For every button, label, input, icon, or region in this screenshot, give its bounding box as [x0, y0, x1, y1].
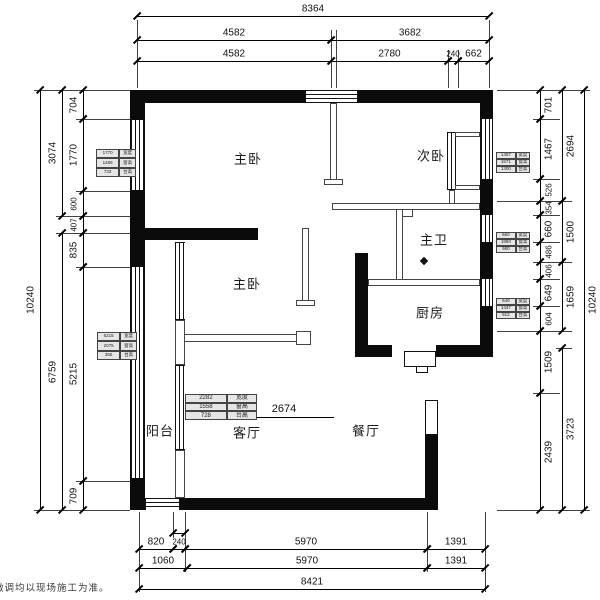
window-tag-cell: 1770 — [96, 149, 119, 158]
wall-exterior-left-1 — [130, 90, 145, 120]
dimension-value: 2780 — [378, 49, 400, 60]
extension-line — [34, 510, 130, 511]
window-tag-right-mid: 660宽度1850窗高980台高 — [496, 232, 530, 253]
dimension-value: 4582 — [223, 49, 245, 60]
dimension-line — [427, 549, 485, 550]
dimension-value: 600 — [70, 197, 79, 210]
dimension-line — [540, 90, 541, 119]
window-tag-cell: 733 — [96, 168, 119, 177]
dimension-value: 649 — [544, 284, 555, 301]
dimension-value: 1467 — [544, 138, 555, 160]
dimension-line — [540, 393, 541, 510]
window-tag-cell: 1850 — [496, 239, 516, 246]
window-tag-cell: 台高 — [227, 411, 257, 420]
dimension-line — [562, 348, 563, 510]
extension-line — [173, 512, 174, 538]
extension-line — [336, 30, 337, 88]
wall-kitchen-top — [368, 279, 480, 286]
extension-line — [331, 30, 332, 88]
window-tag-cell: 宽度 — [120, 332, 137, 341]
balcony-pier-2 — [175, 450, 185, 498]
extension-line — [56, 216, 130, 217]
dimension-value: 5215 — [69, 363, 80, 385]
dimension-value: 3682 — [399, 28, 421, 39]
room-label-second-bedroom: 次卧 — [417, 146, 445, 165]
dimension-line — [137, 16, 489, 17]
extension-line — [533, 393, 560, 394]
window-tag-cell: 912 — [496, 312, 516, 319]
extension-line — [56, 233, 130, 234]
extension-line — [533, 242, 560, 243]
dimension-value: 8421 — [301, 577, 323, 588]
dimension-line — [62, 90, 63, 216]
dimension-value: 526 — [545, 183, 554, 196]
window-tag-cell: 台高 — [516, 312, 530, 319]
extension-line — [497, 90, 590, 91]
extension-line — [533, 262, 572, 263]
window-tag-cell: 台高 — [119, 168, 136, 177]
window-tag-cell: 窗高 — [516, 239, 530, 246]
extension-line — [533, 279, 560, 280]
window-tag-row: 1571窗高 — [496, 159, 530, 166]
dimension-line — [139, 568, 187, 569]
window-tag-cell: 980 — [496, 246, 516, 253]
window-tag-cell: 1558 — [185, 403, 227, 412]
dimension-line — [139, 549, 173, 550]
extension-line — [485, 512, 486, 592]
balcony-glass-2 — [175, 365, 185, 450]
dimension-tick — [485, 12, 493, 20]
window-tag-cell: 365 — [97, 351, 120, 360]
extension-line — [489, 20, 490, 88]
window-tag-cell: 台高 — [120, 351, 137, 360]
window-tag-row: 733台高 — [96, 168, 136, 177]
dimension-value: 662 — [465, 49, 482, 60]
window-tag-cell: 宽度 — [119, 149, 136, 158]
dimension-line — [83, 119, 84, 191]
window-tag-row: 1447窗高 — [496, 305, 530, 312]
dimension-line — [83, 90, 84, 119]
extension-line — [533, 119, 560, 120]
dimension-line — [137, 61, 331, 62]
window-tag-cell: 1467 — [496, 152, 516, 159]
dimension-value: 835 — [69, 242, 80, 259]
dimension-value: 10240 — [588, 286, 599, 314]
door-jamb-bedroom-top — [324, 179, 343, 185]
dimension-line — [83, 481, 84, 510]
window-tag-left-top: 1770宽度1456窗高733台高 — [96, 149, 136, 177]
window-right-kitchen — [480, 279, 493, 306]
dimension-value: 5970 — [295, 537, 317, 548]
dimension-value: 604 — [545, 312, 554, 325]
window-tag-cell: 1456 — [96, 158, 119, 167]
window-tag-cell: 2075 — [97, 341, 120, 350]
window-tag-cell: 宽度 — [516, 152, 530, 159]
dimension-value: 1770 — [69, 144, 80, 166]
wall-bedroom-divider — [330, 103, 337, 181]
window-tag-row: 660宽度 — [496, 232, 530, 239]
dimension-value: 10240 — [26, 286, 37, 314]
extension-line — [137, 20, 138, 88]
extension-line — [497, 201, 572, 202]
room-label-master-bath: 主卫 — [420, 230, 448, 249]
window-tag-cell: 1447 — [496, 305, 516, 312]
dimension-value: 820 — [148, 537, 165, 548]
window-tag-cell: 窗高 — [119, 158, 136, 167]
bay-window-stub — [449, 190, 455, 204]
floor-plan-canvas: 主卧 次卧 主卫 主卧 厨房 阳台 客厅 餐厅 ▽ 2674 836445823… — [0, 0, 600, 600]
wall-exterior-bottom — [180, 498, 438, 510]
window-tag-cell: 660 — [496, 232, 516, 239]
dimension-value: 486 — [545, 245, 554, 258]
extension-line — [76, 119, 130, 120]
window-tag-cell: 1571 — [496, 159, 516, 166]
window-tag-row: 5215宽度 — [97, 332, 137, 341]
dimension-value: 1509 — [544, 351, 555, 373]
wall-kitchen-bottom-right — [436, 345, 493, 357]
dimension-value: 240 — [172, 538, 185, 547]
window-tag-cell: 5215 — [97, 332, 120, 341]
kitchen-door-threshold — [404, 351, 436, 367]
window-tag-cell: 台高 — [516, 246, 530, 253]
window-top — [305, 90, 358, 103]
dimension-value: 2439 — [544, 440, 555, 462]
dimension-line — [83, 267, 84, 481]
dimension-value: 1391 — [445, 556, 467, 567]
extension-line — [76, 481, 130, 482]
floor-drain-icon — [420, 257, 428, 265]
window-tag-row: 2282宽度 — [185, 394, 257, 403]
kitchen-door-threshold-notch — [416, 366, 428, 373]
window-left-balcony — [130, 267, 145, 478]
window-tag-row: 1770宽度 — [96, 149, 136, 158]
window-tag-left-balcony: 5215宽度2075窗高365台高 — [97, 332, 137, 360]
window-tag-cell: 2282 — [185, 394, 227, 403]
dimension-line — [540, 331, 541, 393]
bay-window-inner — [447, 132, 457, 190]
dimension-value: 1391 — [445, 537, 467, 548]
window-tag-cell: 窗高 — [227, 403, 257, 412]
dimension-value: 709 — [69, 487, 80, 504]
extension-line — [497, 510, 590, 511]
wall-bedroom2-bottom — [183, 334, 304, 342]
dimension-value: 2694 — [566, 134, 577, 156]
window-tag-cell: 窗高 — [120, 341, 137, 350]
window-tag-row: 649宽度 — [496, 298, 530, 305]
dimension-line — [540, 119, 541, 179]
window-tag-right-kitchen: 649宽度1447窗高912台高 — [496, 298, 530, 319]
dimension-value: 407 — [70, 218, 79, 231]
wall-kitchen-bottom-left — [355, 345, 392, 357]
window-tag-row: 1850窗高 — [496, 239, 530, 246]
room-label-kitchen: 厨房 — [416, 303, 444, 322]
dimension-line — [40, 90, 41, 510]
window-tag-row: 1467宽度 — [496, 152, 530, 159]
room-label-master-bedroom-mid: 主卧 — [233, 274, 261, 293]
dimension-line — [331, 40, 489, 41]
room-label-balcony: 阳台 — [146, 421, 174, 440]
extension-line — [139, 512, 140, 592]
window-tag-cell: 1300 — [496, 166, 516, 173]
dimension-value: 660 — [544, 220, 555, 237]
balcony-glass-1 — [175, 242, 185, 320]
window-tag-cell: 台高 — [516, 166, 530, 173]
dimension-line — [83, 233, 84, 267]
dimension-line — [584, 90, 585, 510]
bay-window-top — [455, 132, 480, 137]
extension-line — [497, 331, 572, 332]
wall-kitchen-left-column — [355, 253, 368, 345]
dimension-value: 5970 — [296, 556, 318, 567]
extension-line — [448, 50, 449, 88]
extension-line — [556, 348, 572, 349]
extension-line — [533, 306, 560, 307]
window-bottom-balcony — [145, 498, 180, 510]
dimension-value: 406 — [545, 264, 554, 277]
dimension-value: 704 — [69, 96, 80, 113]
watermark-text: 微调均以现场施工为准。 — [0, 580, 110, 594]
door-jamb-bedroom2 — [296, 300, 315, 306]
window-tag-row: 1558窗高 — [185, 403, 257, 412]
dimension-line — [562, 90, 563, 201]
balcony-pier-1 — [175, 320, 185, 365]
window-tag-living-door: 2282宽度1558窗高728台高 — [185, 394, 257, 420]
dimension-line — [137, 40, 331, 41]
dimension-line — [62, 233, 63, 510]
door-jamb-bedroom2-bottom — [296, 331, 311, 345]
dimension-value: 354 — [545, 201, 554, 214]
dimension-line — [331, 61, 448, 62]
wall-exterior-right-2 — [480, 179, 493, 215]
annotation-opening-width: 2674 — [272, 403, 296, 415]
dimension-value: 8364 — [302, 4, 324, 15]
wall-exterior-left-3 — [130, 478, 145, 510]
dimension-line — [458, 61, 489, 62]
room-label-living-room: 客厅 — [233, 423, 261, 442]
window-tag-cell: 宽度 — [516, 298, 530, 305]
wall-exterior-top-right — [358, 90, 493, 103]
window-tag-row: 2075窗高 — [97, 341, 137, 350]
dimension-value: 1659 — [566, 285, 577, 307]
dimension-value: 6759 — [48, 360, 59, 382]
window-tag-right-top: 1467宽度1571窗高1300台高 — [496, 152, 530, 173]
dimension-value: 701 — [544, 96, 555, 113]
extension-line — [458, 50, 459, 88]
extension-line — [533, 215, 560, 216]
wall-bath-left — [396, 209, 403, 283]
window-tag-row: 980台高 — [496, 246, 530, 253]
room-label-dining-room: 餐厅 — [352, 421, 380, 440]
dimension-line — [139, 589, 485, 590]
wall-exterior-right-1 — [480, 90, 493, 119]
dimension-line — [562, 201, 563, 262]
extension-line — [76, 191, 130, 192]
extension-line — [34, 90, 130, 91]
extension-line — [185, 512, 186, 572]
extension-line — [533, 179, 560, 180]
window-tag-row: 912台高 — [496, 312, 530, 319]
dimension-line — [187, 568, 427, 569]
bay-window-bottom — [455, 185, 480, 190]
room-label-master-bedroom-top: 主卧 — [234, 149, 262, 168]
window-right-bedroom — [480, 119, 493, 179]
window-tag-row: 728台高 — [185, 411, 257, 420]
window-right-bath — [480, 215, 493, 242]
dimension-line — [427, 568, 485, 569]
window-tag-cell: 窗高 — [516, 159, 530, 166]
dimension-line — [562, 262, 563, 331]
window-tag-cell: 窗高 — [516, 305, 530, 312]
wall-exterior-right-3 — [480, 242, 493, 279]
wall-exterior-top-left — [133, 90, 305, 103]
extension-line — [76, 267, 130, 268]
dimension-value: 1060 — [152, 556, 174, 567]
window-tag-row: 1456窗高 — [96, 158, 136, 167]
dimension-value: 4582 — [223, 28, 245, 39]
window-tag-cell: 728 — [185, 411, 227, 420]
dimension-value: 3723 — [566, 418, 577, 440]
wall-bedroom2-right — [302, 228, 309, 302]
dimension-value: 1500 — [566, 220, 577, 242]
dimension-line — [185, 549, 427, 550]
window-tag-cell: 宽度 — [516, 232, 530, 239]
extension-line — [427, 512, 428, 572]
window-tag-cell: 649 — [496, 298, 516, 305]
window-tag-row: 1300台高 — [496, 166, 530, 173]
annotation-leader-line — [252, 417, 334, 418]
window-tag-row: 365台高 — [97, 351, 137, 360]
wall-middle-black — [133, 228, 258, 240]
window-entry — [425, 400, 438, 435]
dimension-value: 3074 — [48, 142, 59, 164]
window-tag-cell: 宽度 — [227, 394, 257, 403]
